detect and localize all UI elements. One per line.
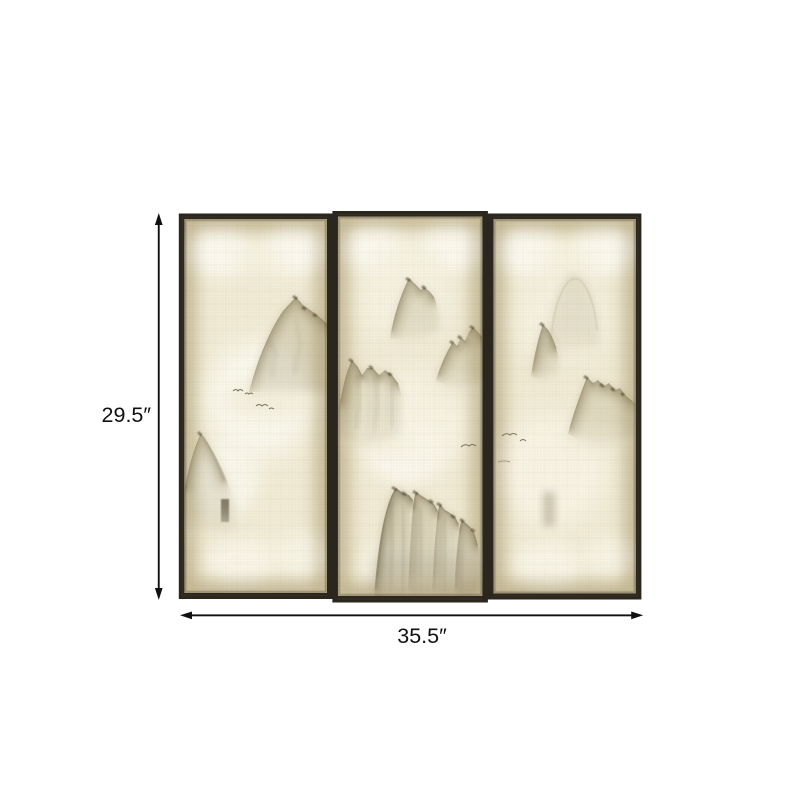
svg-text:35.5″: 35.5″ [397,624,447,648]
svg-text:29.5″: 29.5″ [102,403,152,427]
